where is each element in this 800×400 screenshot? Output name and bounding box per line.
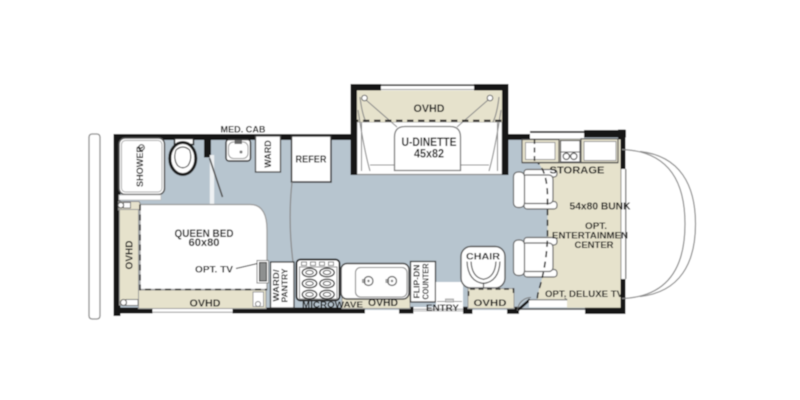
svg-text:STORAGE: STORAGE xyxy=(550,166,605,177)
svg-text:COUNTER: COUNTER xyxy=(422,263,431,299)
svg-text:54x80 BUNK: 54x80 BUNK xyxy=(570,202,632,213)
svg-text:SHOWER: SHOWER xyxy=(135,145,145,187)
svg-text:ENTRY: ENTRY xyxy=(426,303,460,314)
svg-text:WARD: WARD xyxy=(263,140,273,168)
svg-text:OVHD: OVHD xyxy=(125,241,136,270)
svg-text:OVHD: OVHD xyxy=(474,298,507,309)
svg-text:FLIP-DN: FLIP-DN xyxy=(413,264,422,298)
svg-text:OVHD: OVHD xyxy=(414,103,445,115)
svg-text:MED. CAB: MED. CAB xyxy=(221,125,267,135)
svg-text:CHAIR: CHAIR xyxy=(466,252,501,262)
svg-text:45x82: 45x82 xyxy=(414,149,444,161)
svg-text:CENTER: CENTER xyxy=(575,240,614,251)
svg-text:PANTRY: PANTRY xyxy=(281,268,290,303)
svg-text:OVHD: OVHD xyxy=(190,298,221,310)
svg-text:60x80: 60x80 xyxy=(189,237,220,249)
svg-text:OVHD: OVHD xyxy=(368,298,398,309)
svg-text:U-DINETTE: U-DINETTE xyxy=(402,137,457,149)
svg-text:MICROWAVE: MICROWAVE xyxy=(302,300,363,310)
svg-text:REFER: REFER xyxy=(296,155,328,166)
svg-text:OPT. DELUXE TV: OPT. DELUXE TV xyxy=(545,289,623,299)
svg-text:OPT. TV: OPT. TV xyxy=(195,265,234,276)
